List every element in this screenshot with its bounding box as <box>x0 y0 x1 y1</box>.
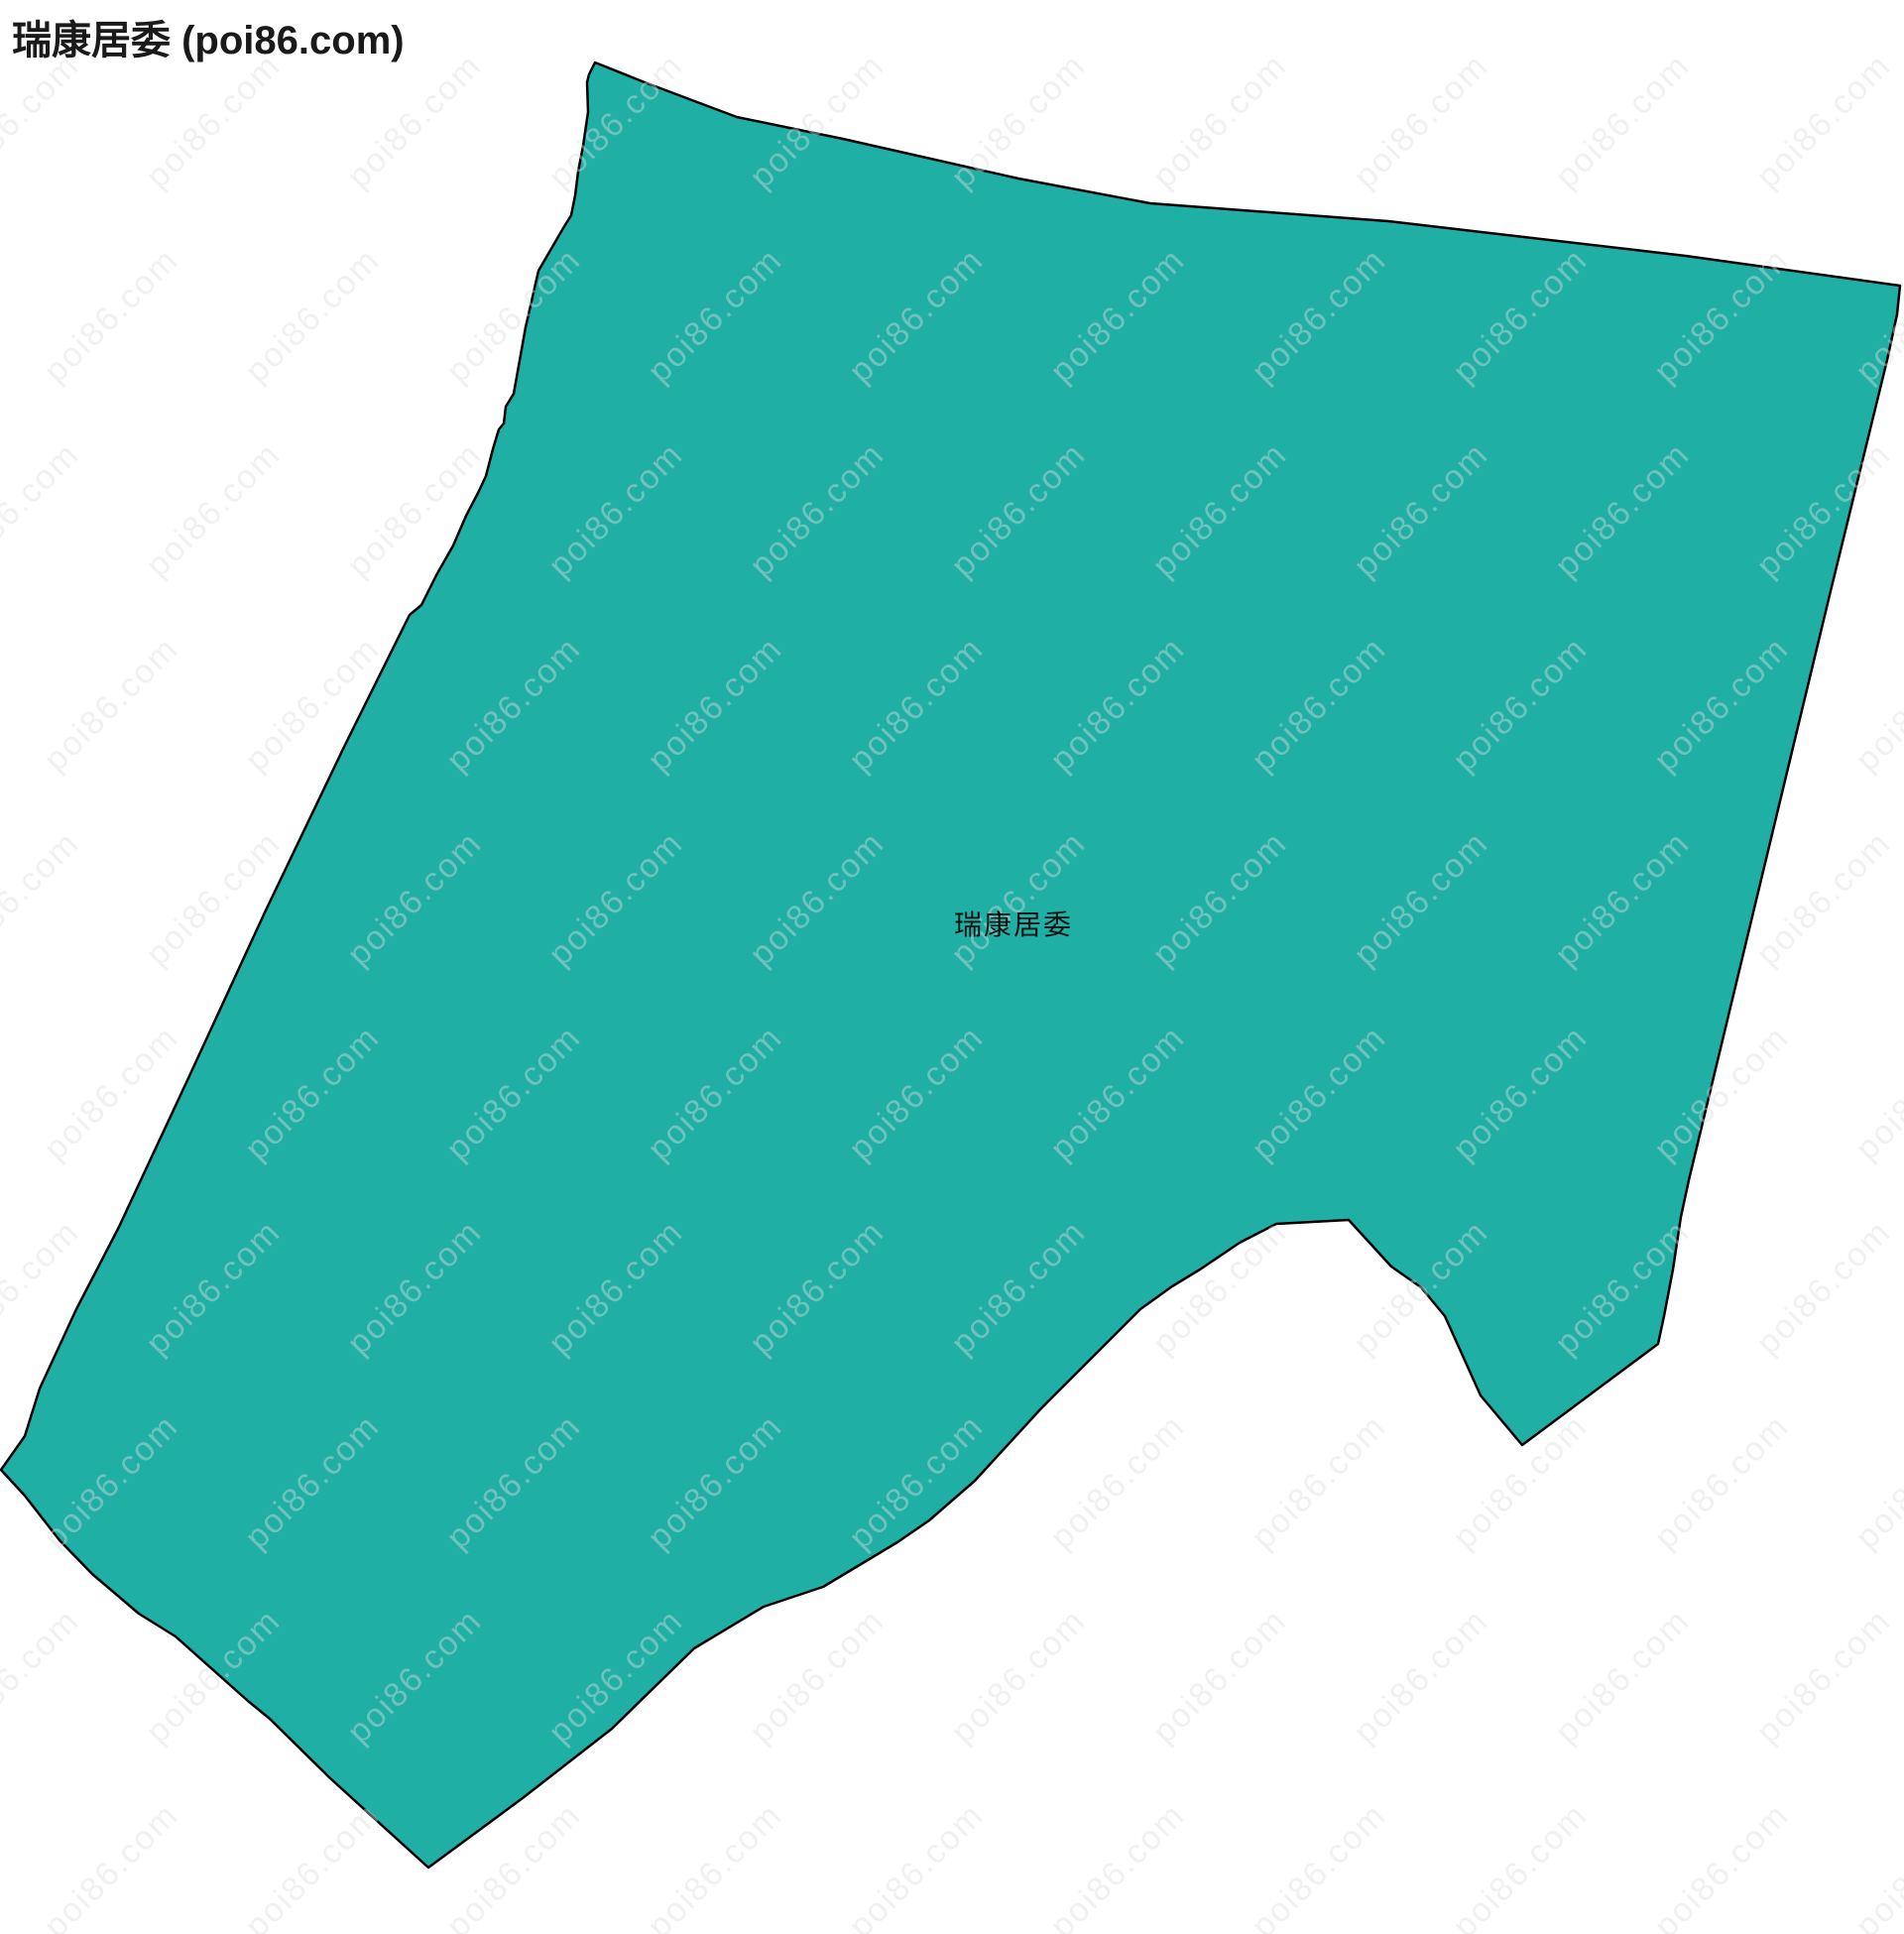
region-label: 瑞康居委 <box>954 904 1073 943</box>
page-title: 瑞康居委 (poi86.com) <box>12 8 405 65</box>
map-page: poi86.compoi86.compoi86.compoi86.compoi8… <box>0 0 1904 1934</box>
region-map <box>0 0 1904 1934</box>
region-polygon <box>1 62 1900 1868</box>
